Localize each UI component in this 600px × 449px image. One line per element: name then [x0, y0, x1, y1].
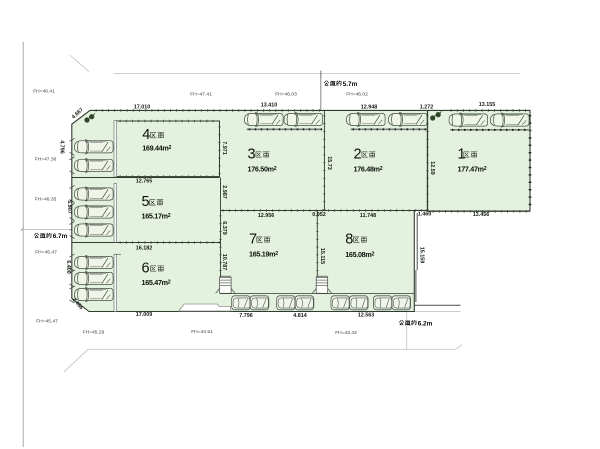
svg-text:12.956: 12.956	[258, 213, 275, 219]
svg-text:5.7m: 5.7m	[343, 81, 358, 88]
svg-text:13.456: 13.456	[473, 212, 490, 218]
svg-text:6.400: 6.400	[65, 260, 71, 274]
svg-text:7.796: 7.796	[239, 313, 253, 319]
svg-text:12.563: 12.563	[358, 312, 375, 318]
svg-text:7: 7	[249, 231, 257, 247]
svg-text:165.47m2: 165.47m2	[142, 278, 171, 287]
svg-text:7.971: 7.971	[221, 141, 227, 155]
svg-text:6.2m: 6.2m	[418, 320, 433, 327]
svg-text:165.19m2: 165.19m2	[249, 250, 278, 259]
svg-text:169.44m2: 169.44m2	[142, 144, 171, 153]
svg-text:5: 5	[142, 194, 150, 210]
svg-text:17.009: 17.009	[136, 312, 153, 318]
svg-text:FH=47.36: FH=47.36	[35, 157, 57, 163]
svg-text:1.272: 1.272	[420, 104, 434, 110]
svg-text:176.48m2: 176.48m2	[354, 164, 383, 173]
svg-text:12.59: 12.59	[429, 161, 435, 175]
svg-text:FH=45.47: FH=45.47	[35, 250, 57, 256]
svg-text:FH=46.02: FH=46.02	[346, 92, 368, 98]
svg-text:0.952: 0.952	[312, 212, 326, 218]
svg-text:6: 6	[142, 260, 150, 276]
svg-text:2.987: 2.987	[221, 185, 227, 199]
svg-text:FH=43.42: FH=43.42	[335, 330, 357, 336]
svg-text:165.17m2: 165.17m2	[142, 211, 171, 220]
svg-text:6.7m: 6.7m	[53, 233, 68, 240]
svg-text:165.08m2: 165.08m2	[345, 250, 374, 259]
svg-text:13.410: 13.410	[261, 103, 278, 109]
svg-text:FH=45.47: FH=45.47	[36, 318, 58, 324]
svg-text:15.73: 15.73	[326, 156, 332, 170]
svg-text:FH=46.03: FH=46.03	[275, 91, 297, 97]
svg-text:FH=44.51: FH=44.51	[191, 329, 213, 335]
svg-text:8: 8	[345, 231, 353, 247]
svg-text:FH=46.41: FH=46.41	[33, 89, 55, 95]
svg-text:13.155: 13.155	[479, 102, 496, 108]
svg-text:15.115: 15.115	[319, 248, 325, 264]
svg-text:4.796: 4.796	[59, 140, 65, 154]
svg-text:12.948: 12.948	[361, 104, 378, 110]
svg-text:6.379: 6.379	[221, 221, 227, 235]
svg-text:4: 4	[142, 127, 150, 143]
svg-text:FH=47.41: FH=47.41	[190, 91, 212, 97]
svg-text:11.748: 11.748	[360, 213, 376, 219]
svg-text:10.787: 10.787	[221, 254, 227, 271]
svg-text:FH=46.35: FH=46.35	[35, 197, 57, 203]
svg-text:15.159: 15.159	[418, 247, 424, 264]
svg-text:FH=45.29: FH=45.29	[83, 330, 105, 336]
svg-text:177.47m2: 177.47m2	[458, 164, 487, 173]
svg-text:1: 1	[458, 146, 466, 162]
svg-text:12.765: 12.765	[136, 178, 153, 184]
svg-text:4.814: 4.814	[293, 313, 307, 319]
svg-text:1.460: 1.460	[418, 211, 432, 217]
svg-text:3: 3	[248, 146, 256, 162]
svg-text:16.182: 16.182	[136, 245, 153, 251]
svg-text:5.907: 5.907	[66, 200, 72, 214]
svg-text:17.010: 17.010	[134, 104, 151, 110]
svg-text:176.50m2: 176.50m2	[248, 164, 277, 173]
svg-text:2: 2	[354, 146, 362, 162]
